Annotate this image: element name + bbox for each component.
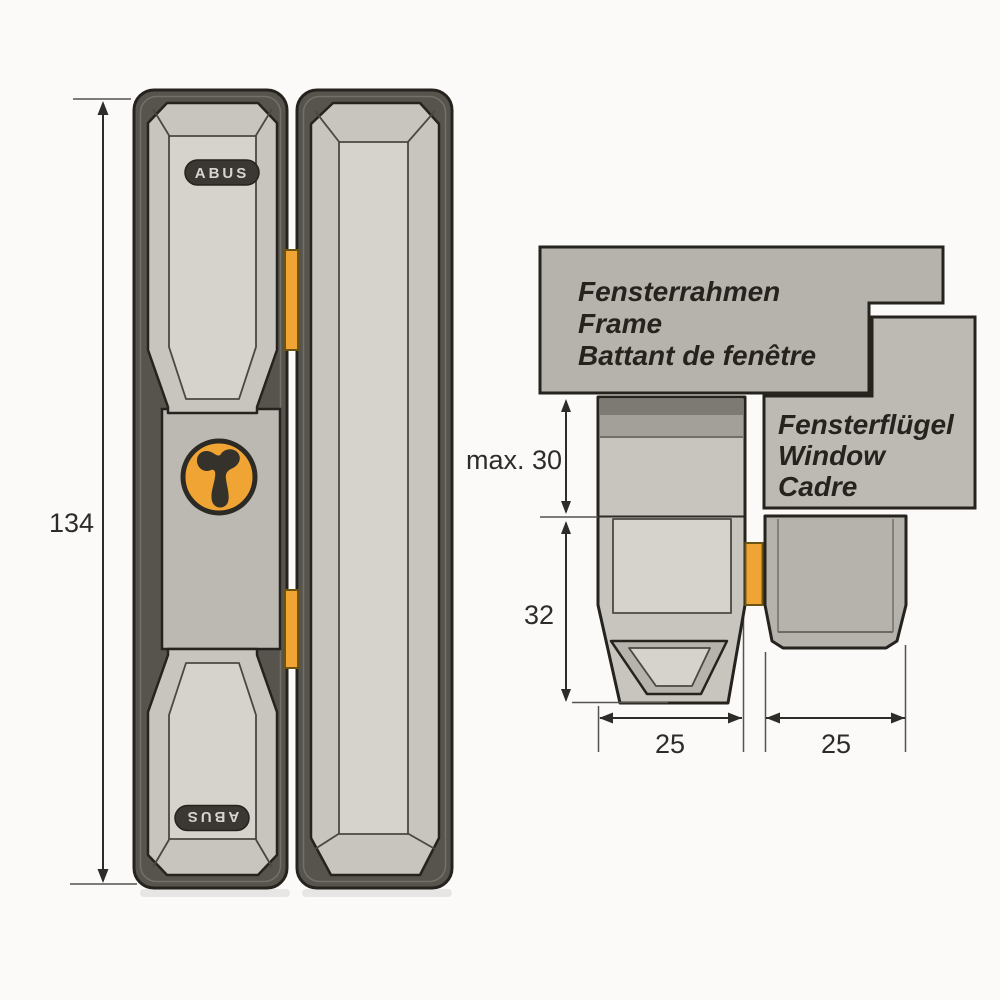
arrow-right-icon <box>891 713 905 724</box>
strike-shadow <box>302 889 452 897</box>
frame-label-fr: Battant de fenêtre <box>578 340 816 371</box>
dimension-25-right: 25 <box>766 645 906 759</box>
dim32-label: 32 <box>524 600 554 630</box>
abus-badge-top-label: ABUS <box>195 165 250 182</box>
lock-body: ABUS ABUS <box>134 90 287 888</box>
dim25-lock-label: 25 <box>655 729 685 759</box>
frame-label-en: Frame <box>578 308 662 339</box>
frame-label-de: Fensterrahmen <box>578 276 780 307</box>
dimension-max30: max. 30 <box>466 399 571 514</box>
arrow-down-icon <box>561 689 571 702</box>
lock-shadow <box>140 889 290 897</box>
height-dimension-label: 134 <box>49 508 94 538</box>
arrow-right-icon <box>728 713 742 724</box>
diagram-page: 134 ABUS <box>0 0 1000 1000</box>
arrow-left-icon <box>599 713 613 724</box>
abus-badge-bottom: ABUS <box>175 806 249 831</box>
connector-bar-bottom <box>285 590 298 668</box>
sash-label-fr: Cadre <box>778 471 857 502</box>
arrow-up-icon <box>98 101 109 115</box>
dimension-25-left: 25 <box>599 706 743 759</box>
arrow-down-icon <box>98 869 109 883</box>
lock-bottom-panel: ABUS <box>148 649 277 875</box>
dim25-strike-label: 25 <box>821 729 851 759</box>
max30-label: max. 30 <box>466 445 562 475</box>
arrow-down-icon <box>561 501 571 514</box>
front-view: 134 ABUS <box>49 90 452 897</box>
window-lock-diagram: 134 ABUS <box>0 0 1000 1000</box>
abus-badge-bottom-label: ABUS <box>185 808 240 825</box>
height-dimension: 134 <box>49 99 137 884</box>
arrow-up-icon <box>561 399 571 412</box>
sash-label-en: Window <box>778 440 887 471</box>
locking-bolt <box>746 543 763 605</box>
lock-profile <box>598 397 745 703</box>
strike-profile <box>765 516 906 648</box>
arrow-up-icon <box>561 521 571 534</box>
strike-plate <box>297 90 452 888</box>
abus-badge-top: ABUS <box>185 160 259 185</box>
keyhole-icon <box>183 441 255 513</box>
arrow-left-icon <box>766 713 780 724</box>
lock-top-panel: ABUS <box>148 103 277 413</box>
connector-bar-top <box>285 250 298 350</box>
cross-section: Fensterrahmen Frame Battant de fenêtre F… <box>466 247 975 759</box>
sash-label-de: Fensterflügel <box>778 409 955 440</box>
